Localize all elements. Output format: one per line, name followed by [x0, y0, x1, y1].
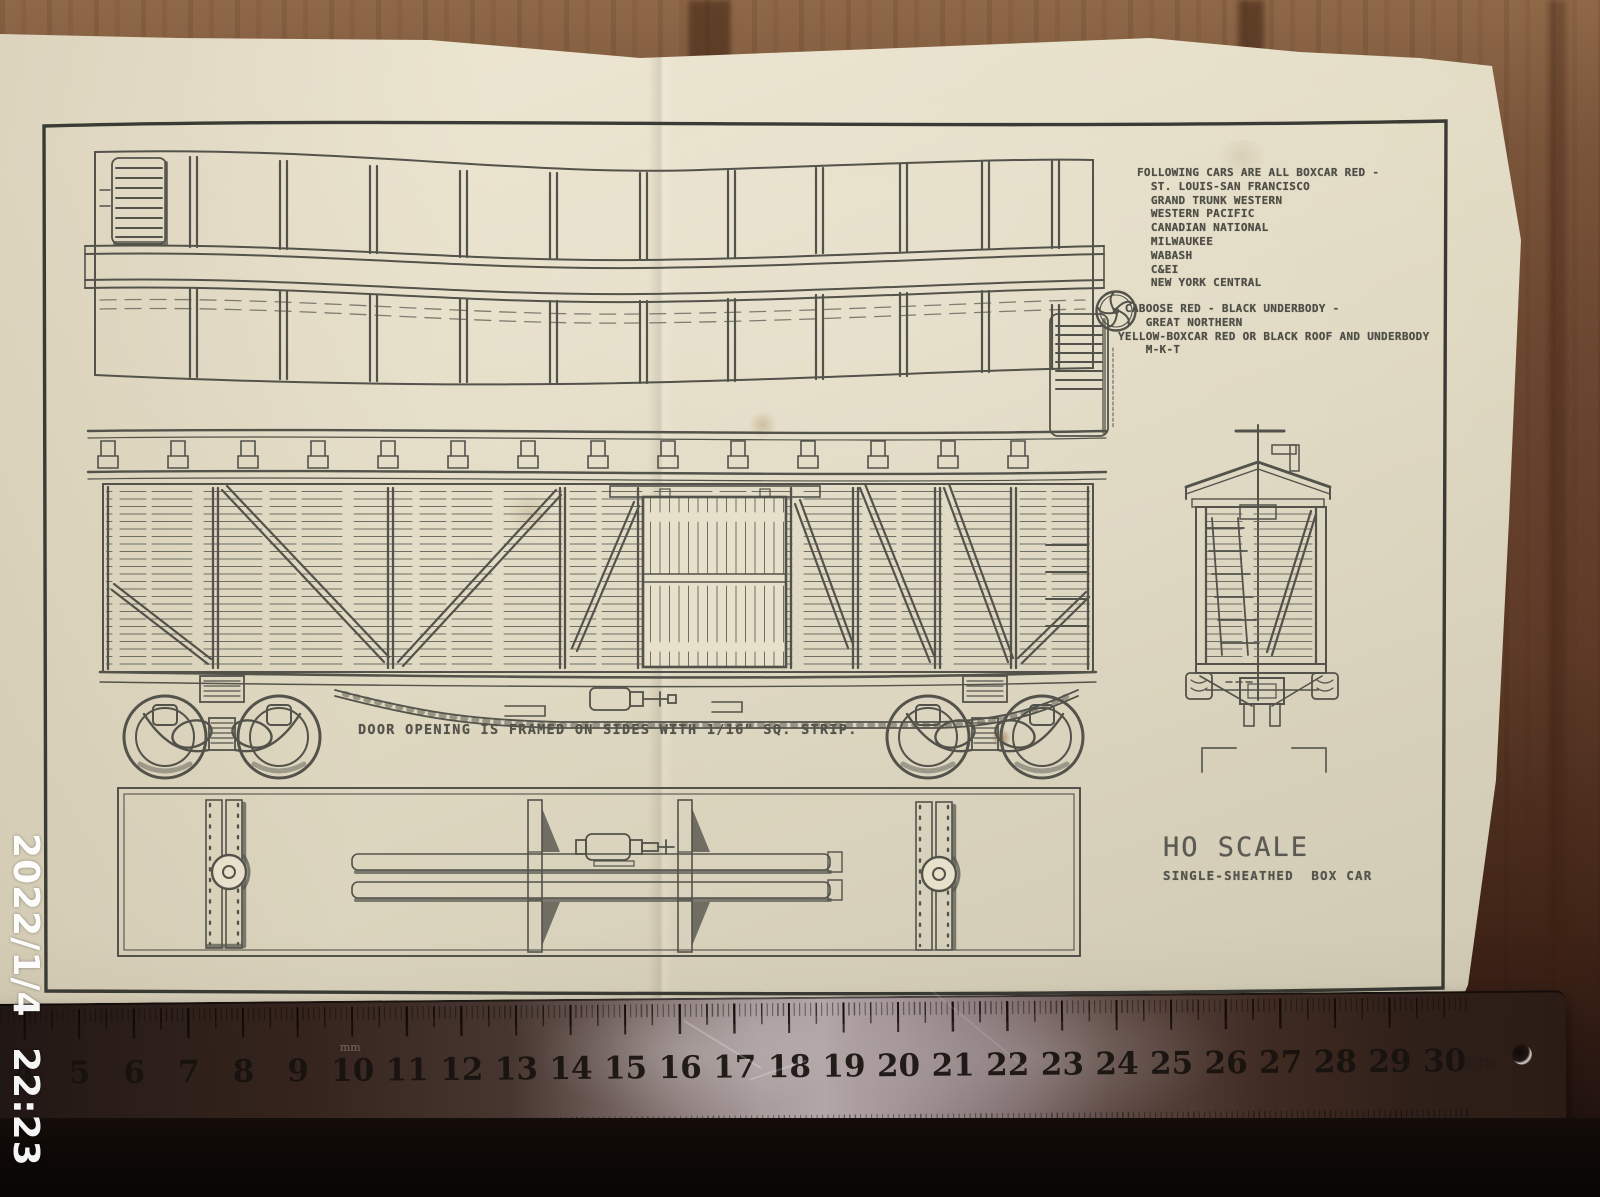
roof-plan-view — [85, 151, 1136, 436]
ruler-number: 11 — [385, 1052, 428, 1088]
ruler-number: 7 — [178, 1054, 200, 1090]
corner-marks — [1202, 748, 1326, 772]
table-shadow-area — [0, 1118, 1600, 1197]
ruler-number: 21 — [931, 1047, 974, 1083]
ruler-number: 24 — [1095, 1046, 1138, 1082]
plan-subtitle: SINGLE-SHEATHED BOX CAR — [1163, 868, 1372, 883]
end-elevation-view — [1186, 425, 1338, 772]
camera-timestamp-overlay: 2022/1/4 22:23 — [5, 833, 46, 1167]
ruler-number: 29 — [1368, 1044, 1411, 1080]
ruler-number: 15 — [604, 1050, 647, 1086]
roof-clips — [98, 441, 1028, 468]
ruler-number: 18 — [768, 1049, 811, 1085]
ruler-numbers: 4567891011121314151617181920212223242526… — [0, 993, 1471, 1138]
plan-title: HO SCALE — [1163, 832, 1309, 863]
ruler-number: 5 — [69, 1055, 91, 1091]
metal-ruler: 4567891011121314151617181920212223242526… — [0, 990, 1567, 1138]
roof-hatch-left — [100, 158, 166, 244]
bolster-left — [206, 800, 249, 948]
brake-cylinder-underbody — [576, 834, 674, 866]
ruler-number: 19 — [822, 1048, 865, 1084]
step-stirrups — [505, 702, 742, 716]
color-notes-block-1: FOLLOWING CARS ARE ALL BOXCAR RED - ST. … — [1137, 166, 1379, 290]
ruler-hanging-hole — [1512, 1045, 1532, 1065]
roof-running-board — [85, 245, 1104, 302]
ruler-number: 26 — [1204, 1045, 1247, 1081]
ruler-number: 12 — [440, 1052, 483, 1088]
ruler-number: 9 — [287, 1053, 309, 1089]
crossbearers — [528, 800, 710, 952]
ruler-number: 27 — [1259, 1045, 1302, 1081]
ruler-number: 17 — [713, 1049, 756, 1085]
color-notes-block-2: CABOOSE RED - BLACK UNDERBODY - GREAT NO… — [1118, 302, 1430, 357]
truck-right — [887, 676, 1083, 778]
ruler-number: 8 — [232, 1054, 254, 1090]
ruler-number: 20 — [877, 1048, 920, 1084]
door-opening-caption: DOOR OPENING IS FRAMED ON SIDES WITH 1/1… — [358, 722, 858, 738]
ruler-number: 25 — [1150, 1045, 1193, 1081]
ruler-unit-label: cm — [1466, 1051, 1498, 1073]
ruler-number: 14 — [549, 1051, 592, 1087]
ruler-number: 23 — [1041, 1046, 1084, 1082]
ruler-number: 28 — [1314, 1044, 1357, 1080]
brake-cylinder-side — [590, 688, 676, 710]
photo-of-plan-sheet: FOLLOWING CARS ARE ALL BOXCAR RED - ST. … — [0, 0, 1600, 1197]
ruler-number: 10 — [331, 1053, 374, 1089]
underbody-plan-view — [118, 788, 1080, 956]
bolster-right — [916, 802, 959, 950]
ruler-number: 30 — [1423, 1043, 1466, 1079]
ruler-number: 13 — [495, 1051, 538, 1087]
truck-left — [124, 676, 320, 778]
ruler-mm-label: mm — [340, 1041, 361, 1054]
ruler-number: 6 — [123, 1055, 145, 1091]
ruler-number: 16 — [658, 1050, 701, 1086]
